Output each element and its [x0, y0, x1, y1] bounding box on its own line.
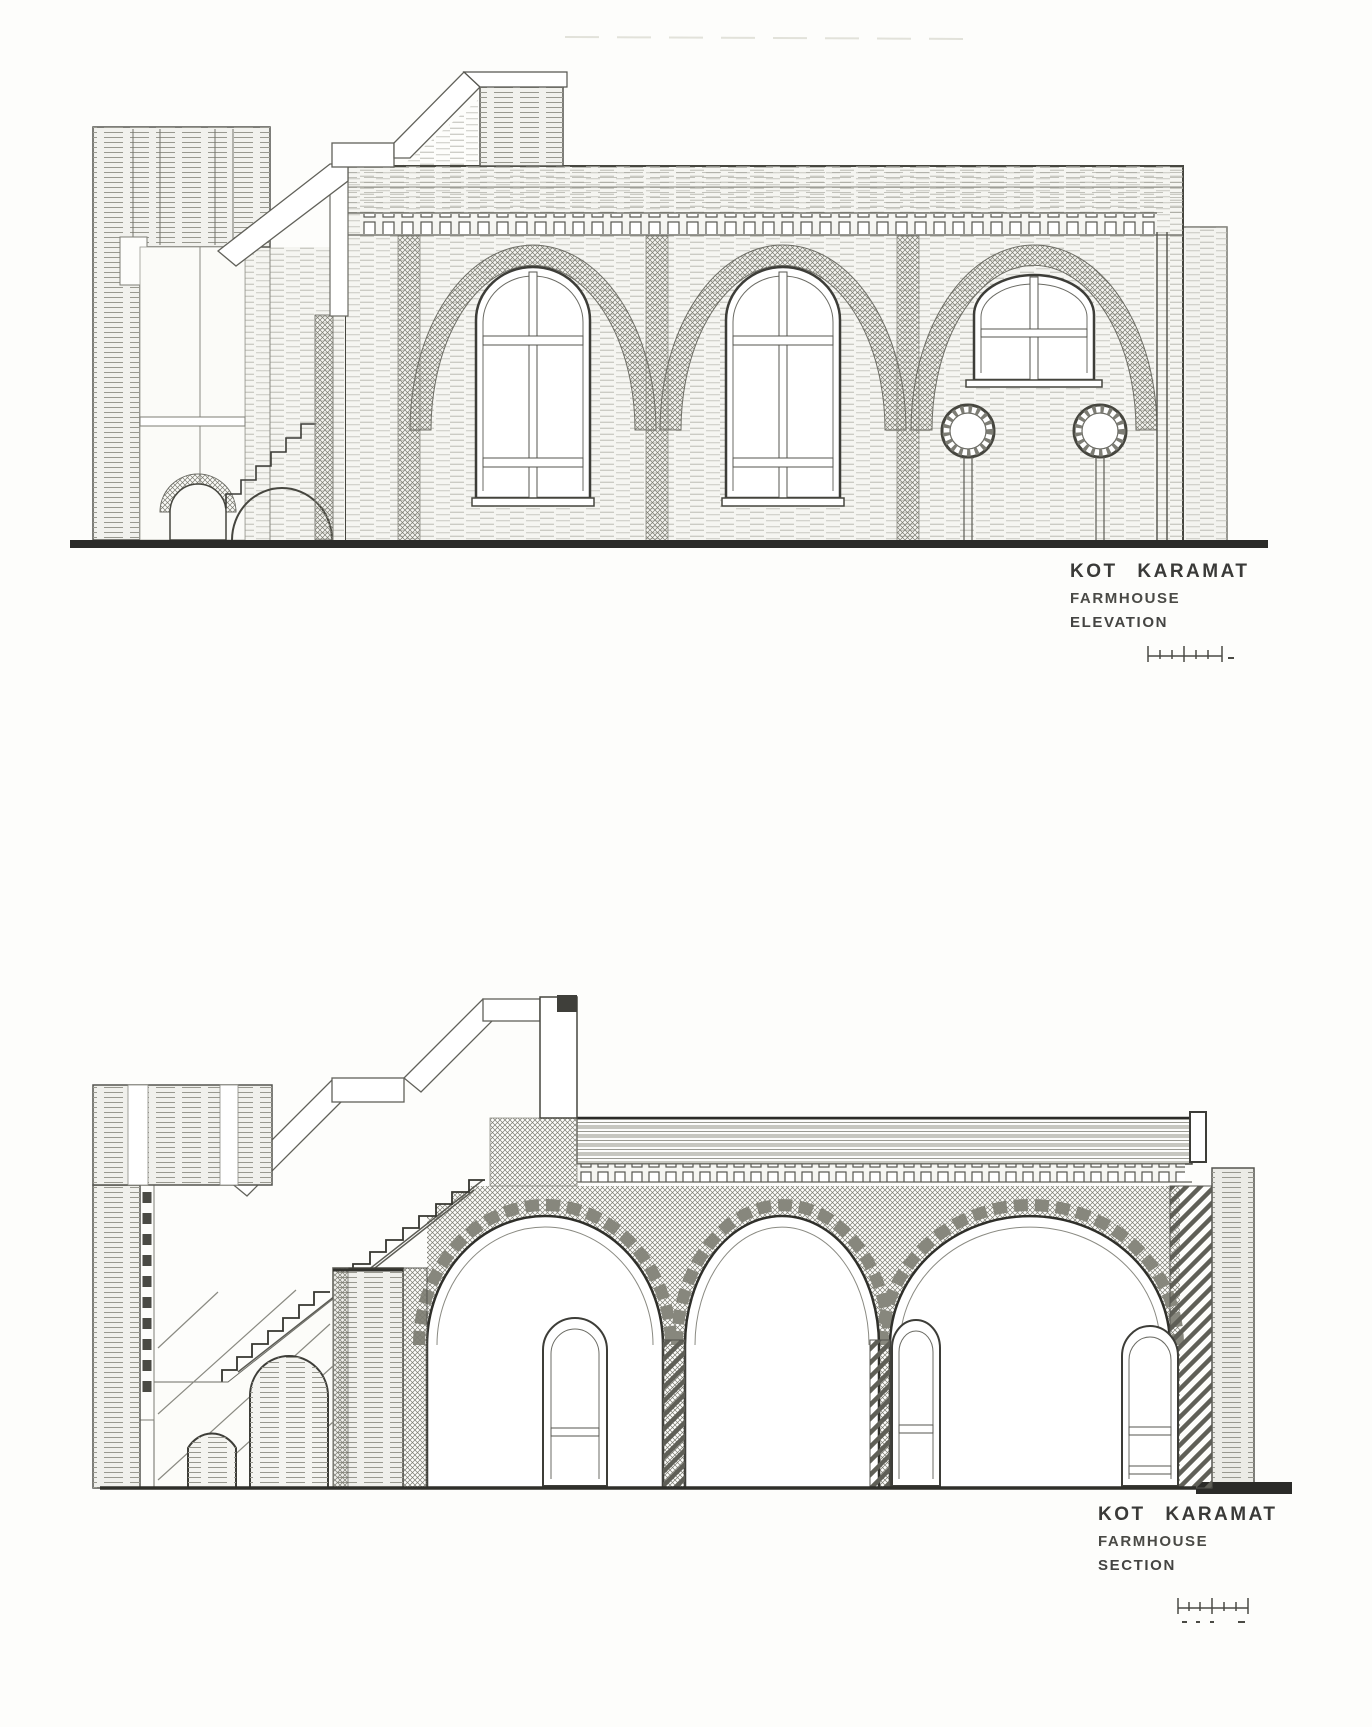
drawing-canvas [0, 0, 1372, 1727]
section-landing-infill [490, 1118, 577, 1186]
section-parapet-cap [557, 995, 577, 1012]
section-middle-pier [333, 1268, 403, 1488]
section-window-3 [1122, 1326, 1178, 1486]
elevation-peak-parapet [464, 72, 567, 166]
section-right-wall [1212, 1168, 1254, 1490]
section-title-block: KOT KARAMAT FARMHOUSE SECTION [1098, 1504, 1278, 1574]
elevation-ground-line [70, 540, 1268, 548]
elevation-scale-bar [1148, 646, 1234, 662]
section-drawing-type: SECTION [1098, 1557, 1278, 1574]
drawing-sheet: KOT KARAMAT FARMHOUSE ELEVATION KOT KARA… [0, 0, 1372, 1727]
section-building-label: FARMHOUSE [1098, 1533, 1278, 1550]
section-roof-slab [577, 1112, 1206, 1164]
section-project-title: KOT KARAMAT [1098, 1504, 1278, 1526]
elevation-drawing-type: ELEVATION [1070, 614, 1250, 631]
elevation-arched-window-1 [472, 267, 594, 506]
section-window-2 [892, 1320, 940, 1486]
elevation-square-window [966, 275, 1102, 387]
section-scale-bar [1178, 1598, 1248, 1622]
elevation-project-title: KOT KARAMAT [1070, 561, 1250, 583]
elevation-building-label: FARMHOUSE [1070, 590, 1250, 607]
scan-smudge [565, 37, 975, 39]
elevation-dentil-course [345, 213, 1183, 235]
elevation-title-block: KOT KARAMAT FARMHOUSE ELEVATION [1070, 561, 1250, 631]
elevation-arched-window-2 [722, 267, 844, 506]
section-vaults [427, 1216, 1170, 1488]
section-dentil-course [577, 1164, 1192, 1182]
section-bond-strip [140, 1185, 154, 1420]
section-window-1 [543, 1318, 607, 1486]
